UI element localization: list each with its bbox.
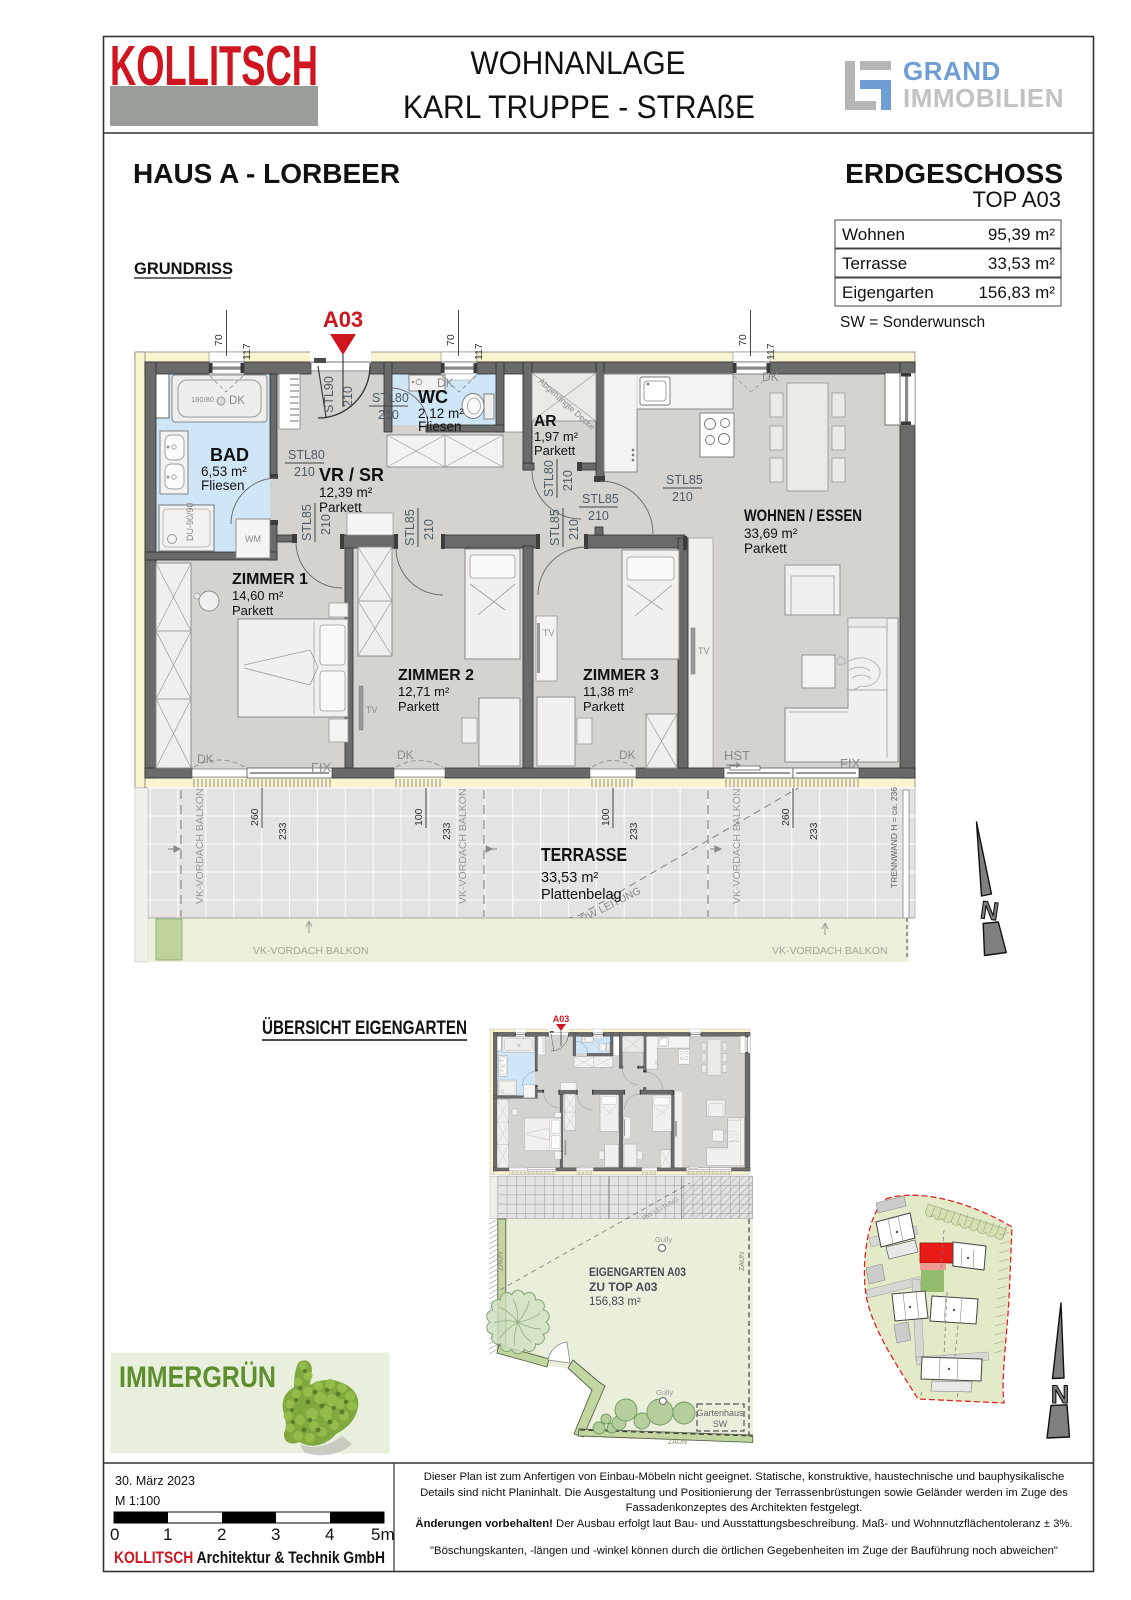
svg-text:STL85: STL85 — [300, 504, 314, 541]
svg-text:DK: DK — [397, 748, 414, 762]
svg-text:WM: WM — [245, 534, 261, 544]
svg-text:210: 210 — [319, 514, 333, 535]
svg-text:Gully: Gully — [655, 1235, 672, 1244]
svg-text:EIGENGARTEN A03: EIGENGARTEN A03 — [589, 1265, 686, 1279]
svg-text:ZAUN: ZAUN — [668, 1439, 687, 1446]
svg-text:210: 210 — [567, 519, 581, 540]
svg-text:GRUNDRISS: GRUNDRISS — [134, 260, 233, 278]
svg-text:TOP A03: TOP A03 — [973, 187, 1061, 212]
svg-text:BAD: BAD — [210, 445, 249, 465]
svg-text:210: 210 — [561, 470, 575, 491]
svg-text:Parkett: Parkett — [534, 443, 576, 458]
svg-text:210: 210 — [422, 519, 436, 540]
svg-text:VK-VORDACH BALKON: VK-VORDACH BALKON — [457, 788, 469, 904]
svg-text:210: 210 — [294, 465, 315, 479]
svg-text:210: 210 — [378, 408, 399, 422]
svg-text:AR: AR — [534, 413, 556, 430]
svg-text:A03: A03 — [323, 307, 363, 332]
svg-text:210: 210 — [588, 509, 609, 523]
svg-text:STL90: STL90 — [322, 376, 336, 413]
svg-text:VK-VORDACH BALKON: VK-VORDACH BALKON — [253, 945, 369, 957]
svg-text:260: 260 — [780, 808, 792, 826]
svg-text:ZU TOP A03: ZU TOP A03 — [589, 1280, 658, 1294]
svg-text:117: 117 — [765, 343, 777, 360]
svg-text:TRENNWAND H = ca. 236: TRENNWAND H = ca. 236 — [889, 787, 899, 888]
svg-text:STL85: STL85 — [582, 492, 619, 506]
svg-text:"Böschungskanten, -längen und: "Böschungskanten, -längen und -winkel kö… — [430, 1545, 1058, 1557]
svg-text:TV: TV — [698, 646, 710, 656]
svg-text:Plattenbelag: Plattenbelag — [541, 887, 622, 903]
svg-text:N: N — [1051, 1381, 1069, 1409]
svg-text:IMMOBILIEN: IMMOBILIEN — [903, 83, 1064, 113]
svg-text:1: 1 — [163, 1525, 172, 1544]
svg-text:117: 117 — [241, 343, 253, 360]
svg-text:IMMERGRÜN: IMMERGRÜN — [119, 1361, 276, 1394]
svg-text:30. März 2023: 30. März 2023 — [115, 1474, 195, 1488]
svg-text:95,39 m²: 95,39 m² — [988, 225, 1055, 244]
svg-text:233: 233 — [808, 822, 820, 840]
svg-text:DU-90/90: DU-90/90 — [185, 502, 195, 541]
svg-text:33,53 m²: 33,53 m² — [541, 870, 598, 886]
svg-text:4: 4 — [325, 1525, 334, 1544]
svg-text:233: 233 — [277, 822, 289, 840]
svg-text:DK: DK — [197, 752, 214, 766]
svg-text:N: N — [979, 896, 1001, 926]
svg-text:ZIMMER 1: ZIMMER 1 — [232, 571, 308, 588]
svg-text:14,60 m²: 14,60 m² — [232, 588, 284, 603]
svg-text:70: 70 — [213, 334, 225, 346]
svg-text:WOHNANLAGE: WOHNANLAGE — [471, 45, 686, 81]
svg-text:Parkett: Parkett — [319, 500, 362, 515]
svg-text:SW: SW — [713, 1419, 728, 1429]
svg-text:Dieser Plan ist zum Anfertigen: Dieser Plan ist zum Anfertigen von Einba… — [424, 1471, 1065, 1483]
svg-text:TV: TV — [543, 628, 555, 638]
svg-text:ERDGESCHOSS: ERDGESCHOSS — [845, 158, 1063, 189]
svg-text:HST: HST — [724, 748, 750, 763]
svg-text:233: 233 — [441, 822, 453, 840]
svg-text:11,38 m²: 11,38 m² — [583, 684, 634, 699]
svg-text:WC: WC — [418, 387, 448, 407]
svg-text:Parkett: Parkett — [398, 699, 440, 714]
svg-text:100: 100 — [413, 808, 425, 826]
svg-text:Eigengarten: Eigengarten — [842, 283, 934, 302]
svg-text:KARL TRUPPE - STRAßE: KARL TRUPPE - STRAßE — [403, 89, 755, 125]
svg-text:VK-VORDACH BALKON: VK-VORDACH BALKON — [772, 945, 888, 957]
svg-text:180/80: 180/80 — [191, 395, 214, 404]
svg-text:STL85: STL85 — [666, 473, 703, 487]
svg-text:M 1:100: M 1:100 — [115, 1494, 160, 1508]
svg-text:156,83 m²: 156,83 m² — [978, 283, 1055, 302]
svg-text:Fassadenkonzeptes des Architek: Fassadenkonzeptes des Architekten festge… — [626, 1502, 863, 1514]
svg-text:WOHNEN / ESSEN: WOHNEN / ESSEN — [744, 506, 862, 525]
svg-text:Terrasse: Terrasse — [842, 254, 907, 273]
svg-text:Wohnen: Wohnen — [842, 225, 905, 244]
svg-text:2: 2 — [217, 1525, 226, 1544]
svg-text:ZIMMER 3: ZIMMER 3 — [583, 667, 659, 684]
svg-text:VK-VORDACH BALKON: VK-VORDACH BALKON — [194, 788, 206, 904]
svg-text:ÜBERSICHT EIGENGARTEN: ÜBERSICHT EIGENGARTEN — [262, 1018, 467, 1039]
svg-text:70: 70 — [737, 334, 749, 346]
svg-text:STL85: STL85 — [548, 509, 562, 546]
svg-text:TV: TV — [366, 705, 378, 715]
svg-text:33,69 m²: 33,69 m² — [744, 526, 798, 541]
svg-text:STL85: STL85 — [403, 509, 417, 546]
svg-text:VK-VORDACH BALKON: VK-VORDACH BALKON — [731, 788, 743, 904]
svg-text:1,97 m²: 1,97 m² — [534, 429, 579, 444]
svg-text:DK: DK — [762, 370, 779, 384]
svg-text:260: 260 — [249, 808, 261, 826]
svg-text:STL80: STL80 — [372, 391, 409, 405]
svg-text:100: 100 — [600, 808, 612, 826]
svg-text:0: 0 — [110, 1525, 119, 1544]
svg-text:STL80: STL80 — [542, 460, 556, 497]
svg-text:Parkett: Parkett — [232, 603, 274, 618]
svg-text:Änderungen vorbehalten! Der Au: Änderungen vorbehalten! Der Ausbau erfol… — [415, 1517, 1072, 1530]
svg-text:12,39 m²: 12,39 m² — [319, 485, 373, 500]
svg-text:FIX: FIX — [311, 760, 332, 775]
svg-text:Parkett: Parkett — [744, 541, 787, 556]
svg-text:117: 117 — [473, 343, 485, 360]
svg-text:DK: DK — [619, 748, 636, 762]
svg-text:STL80: STL80 — [288, 448, 325, 462]
svg-text:Gartenhaus: Gartenhaus — [696, 1408, 744, 1418]
svg-text:SW = Sonderwunsch: SW = Sonderwunsch — [840, 314, 985, 331]
svg-text:VR / SR: VR / SR — [319, 465, 384, 485]
svg-text:HAUS A - LORBEER: HAUS A - LORBEER — [133, 158, 400, 189]
svg-text:Fliesen: Fliesen — [418, 419, 462, 434]
svg-text:210: 210 — [341, 386, 355, 407]
svg-text:33,53 m²: 33,53 m² — [988, 254, 1055, 273]
svg-text:A03: A03 — [553, 1014, 570, 1024]
svg-text:3: 3 — [271, 1525, 280, 1544]
svg-text:5m: 5m — [371, 1525, 395, 1544]
svg-text:Parkett: Parkett — [583, 699, 625, 714]
svg-text:TERRASSE: TERRASSE — [541, 845, 627, 865]
svg-text:Fliesen: Fliesen — [201, 478, 245, 493]
svg-text:GRAND: GRAND — [903, 56, 1001, 86]
svg-text:Gully: Gully — [656, 1388, 673, 1397]
svg-text:210: 210 — [672, 490, 693, 504]
svg-text:KOLLITSCH Architektur & Techni: KOLLITSCH Architektur & Technik GmbH — [114, 1548, 385, 1567]
svg-text:70: 70 — [445, 334, 457, 346]
svg-text:6,53 m²: 6,53 m² — [201, 464, 247, 479]
svg-text:DK: DK — [437, 376, 454, 390]
svg-text:233: 233 — [628, 822, 640, 840]
svg-text:ZAUN: ZAUN — [498, 1252, 505, 1271]
svg-text:ZIMMER 2: ZIMMER 2 — [398, 667, 474, 684]
svg-text:Details sind nicht Planinhalt.: Details sind nicht Planinhalt. Die Ausge… — [420, 1487, 1068, 1499]
svg-text:ZAUN: ZAUN — [739, 1252, 746, 1271]
svg-text:156,83 m²: 156,83 m² — [589, 1296, 641, 1308]
svg-text:FIX: FIX — [840, 756, 861, 771]
svg-text:12,71 m²: 12,71 m² — [398, 684, 450, 699]
svg-text:DK: DK — [229, 395, 245, 407]
